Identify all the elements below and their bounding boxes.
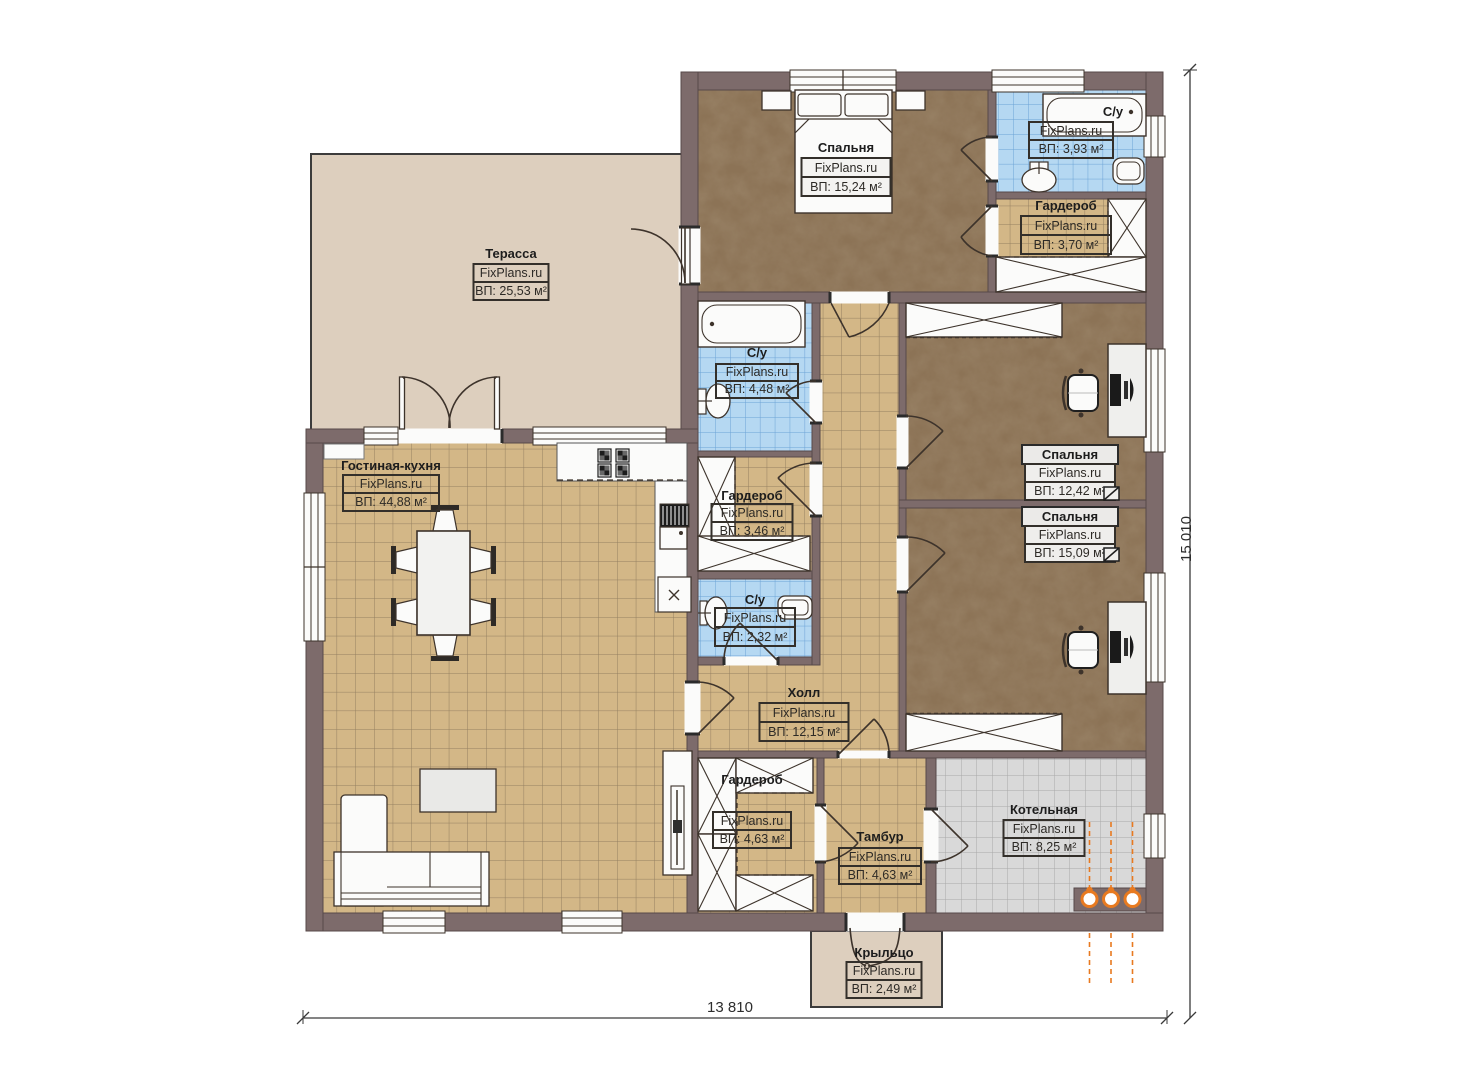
svg-text:FixPlans.ru: FixPlans.ru	[815, 161, 878, 175]
svg-text:FixPlans.ru: FixPlans.ru	[721, 814, 784, 828]
svg-text:15 010: 15 010	[1178, 516, 1195, 562]
svg-text:ВП: 15,24 м²: ВП: 15,24 м²	[810, 180, 882, 194]
svg-text:Гардероб: Гардероб	[721, 772, 782, 787]
svg-text:ВП: 44,88 м²: ВП: 44,88 м²	[355, 495, 427, 509]
svg-text:Тамбур: Тамбур	[856, 829, 903, 844]
svg-text:Терасса: Терасса	[485, 246, 537, 261]
svg-text:ВП: 3,93 м²: ВП: 3,93 м²	[1039, 142, 1104, 156]
svg-text:Холл: Холл	[788, 685, 821, 700]
svg-text:FixPlans.ru: FixPlans.ru	[724, 611, 787, 625]
svg-text:FixPlans.ru: FixPlans.ru	[360, 477, 423, 491]
svg-text:FixPlans.ru: FixPlans.ru	[1013, 822, 1076, 836]
svg-text:ВП: 3,70 м²: ВП: 3,70 м²	[1034, 238, 1099, 252]
svg-text:FixPlans.ru: FixPlans.ru	[480, 266, 543, 280]
svg-text:ВП: 15,09 м²: ВП: 15,09 м²	[1034, 546, 1106, 560]
svg-text:FixPlans.ru: FixPlans.ru	[1035, 219, 1098, 233]
svg-text:FixPlans.ru: FixPlans.ru	[1039, 528, 1102, 542]
svg-text:FixPlans.ru: FixPlans.ru	[721, 506, 784, 520]
svg-text:FixPlans.ru: FixPlans.ru	[726, 365, 789, 379]
svg-text:Спальня: Спальня	[1042, 509, 1098, 524]
svg-text:FixPlans.ru: FixPlans.ru	[773, 706, 836, 720]
svg-text:ВП: 12,15 м²: ВП: 12,15 м²	[768, 725, 840, 739]
svg-text:ВП: 4,48 м²: ВП: 4,48 м²	[725, 382, 790, 396]
svg-text:Гардероб: Гардероб	[721, 488, 782, 503]
svg-text:FixPlans.ru: FixPlans.ru	[1040, 124, 1103, 138]
svg-text:ВП: 3,46 м²: ВП: 3,46 м²	[720, 524, 785, 538]
svg-text:ВП: 4,63 м²: ВП: 4,63 м²	[720, 832, 785, 846]
svg-text:13 810: 13 810	[707, 999, 753, 1016]
svg-text:ВП: 4,63 м²: ВП: 4,63 м²	[848, 868, 913, 882]
svg-text:FixPlans.ru: FixPlans.ru	[1039, 466, 1102, 480]
svg-text:ВП: 2,32 м²: ВП: 2,32 м²	[723, 630, 788, 644]
svg-text:С/у: С/у	[747, 345, 768, 360]
svg-text:Спальня: Спальня	[1042, 447, 1098, 462]
svg-text:С/у: С/у	[1103, 104, 1124, 119]
svg-text:С/у: С/у	[745, 592, 766, 607]
svg-text:ВП: 25,53 м²: ВП: 25,53 м²	[475, 284, 547, 298]
svg-text:ВП: 8,25 м²: ВП: 8,25 м²	[1012, 840, 1077, 854]
svg-text:FixPlans.ru: FixPlans.ru	[853, 964, 916, 978]
svg-text:Гостиная-кухня: Гостиная-кухня	[341, 458, 441, 473]
svg-text:ВП: 12,42 м²: ВП: 12,42 м²	[1034, 484, 1106, 498]
svg-text:FixPlans.ru: FixPlans.ru	[849, 850, 912, 864]
svg-text:Гардероб: Гардероб	[1035, 198, 1096, 213]
svg-text:ВП: 2,49 м²: ВП: 2,49 м²	[852, 982, 917, 996]
svg-text:Крыльцо: Крыльцо	[854, 945, 913, 960]
svg-text:Котельная: Котельная	[1010, 802, 1078, 817]
svg-text:Спальня: Спальня	[818, 140, 874, 155]
